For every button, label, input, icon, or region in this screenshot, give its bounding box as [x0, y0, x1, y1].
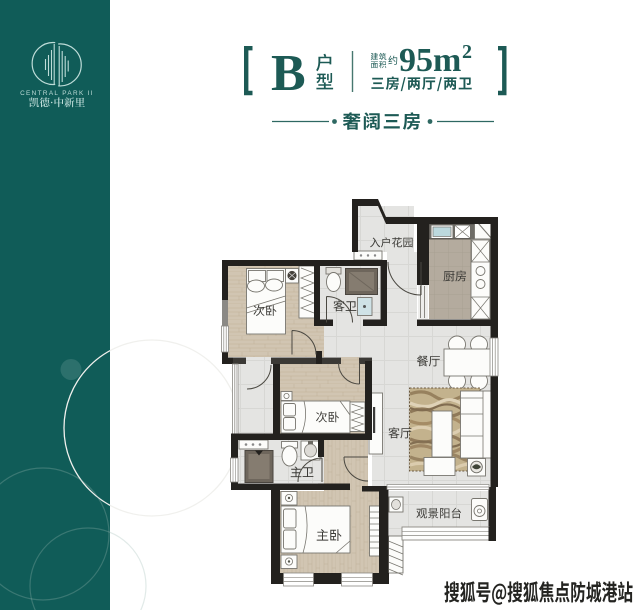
- svg-text:2: 2: [462, 41, 472, 63]
- svg-text:CENTRAL PARK II: CENTRAL PARK II: [20, 90, 94, 97]
- svg-text:95m: 95m: [399, 42, 461, 79]
- svg-text:B: B: [271, 45, 306, 102]
